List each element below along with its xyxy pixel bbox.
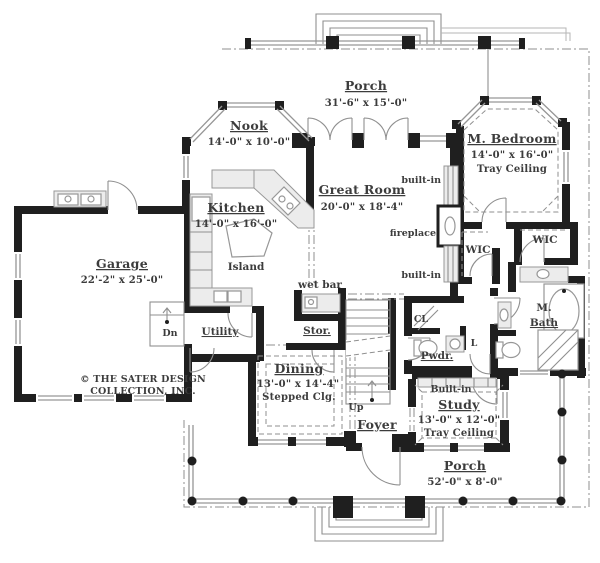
wet-bar-label: wet bar [297,279,342,291]
bath-sink-top [537,270,549,279]
study-note: Tray Ceiling [424,428,494,439]
study-dims: 13'-0" x 12'-0" [418,415,501,426]
porch-top-dims: 31'-6" x 15'-0" [325,98,408,109]
kitchen-top-counter [212,170,254,188]
powder-sink [450,339,460,349]
dining-dims: 13'-0" x 14'-4" [257,379,340,390]
porch-columns [188,370,567,506]
floor-plan-canvas: Porch 31'-6" x 15'-0" [0,0,600,563]
powder-label: Pwdr. [421,350,454,362]
fireplace-label: fireplace [390,228,436,239]
utility-label: Utility [202,326,240,338]
dining-foyer-opening [350,352,355,430]
bath-toilet [502,343,520,358]
m-bath-line1: M. [536,302,551,314]
built-in-lower-cabinet [444,246,458,282]
stairs-down [150,302,184,346]
built-in-lower-label: built-in [401,270,441,281]
built-in-study-label: Built-in [430,384,471,395]
island-label: Island [228,261,265,273]
room-labels: Nook 14'-0" x 10'-0" Kitchen 14'-0" x 16… [80,118,558,439]
bath-sink-left [500,309,508,321]
kitchen-name: Kitchen [207,200,264,215]
built-in-upper-label: built-in [401,175,441,186]
wic-right-label: WIC [531,234,557,246]
porch-bottom-dims: 52'-0" x 8'-0" [427,477,502,488]
stairs-up [346,300,390,404]
m-bedroom-dims: 14'-0" x 16'-0" [471,150,554,161]
dining-name: Dining [274,361,323,376]
study-foyer-opening [410,408,414,431]
linen-label: L [471,338,478,349]
foyer-label: Foyer [357,417,397,432]
stairs-down-label: Dn [162,328,177,339]
m-bath-line2: Bath [530,317,559,329]
copyright-line1: © THE SATER DESIGN [80,374,206,385]
m-bedroom-name: M. Bedroom [467,131,556,146]
dining-note: Stepped Clg. [262,392,336,403]
m-bedroom-note: Tray Ceiling [477,164,547,175]
roof-step-lines [441,28,570,41]
study-name: Study [438,397,480,412]
stairs-up-label: Up [349,402,364,413]
top-porch-posts [245,36,525,49]
porch-top-name: Porch [345,78,387,93]
built-in-upper-cabinet [444,166,458,206]
floor-plan-page: Porch 31'-6" x 15'-0" [0,0,600,563]
nook-dims: 14'-0" x 10'-0" [208,137,291,148]
wic-left-label: WIC [464,244,490,256]
storage-label: Stor. [303,325,331,337]
garage-name: Garage [96,256,148,271]
great-room-dims: 20'-0" x 18'-4" [321,202,404,213]
porch-bottom-name: Porch [444,458,486,473]
kitchen-dims: 14'-0" x 16'-0" [195,219,278,230]
garage-dims: 22'-2" x 25'-0" [81,275,164,286]
great-room-name: Great Room [319,182,406,197]
nook-name: Nook [230,118,268,133]
copyright-line2: COLLECTION, INC. [90,386,196,397]
kitchen-sink [214,291,227,302]
closet-label: CL [414,314,429,325]
shower [538,330,578,370]
